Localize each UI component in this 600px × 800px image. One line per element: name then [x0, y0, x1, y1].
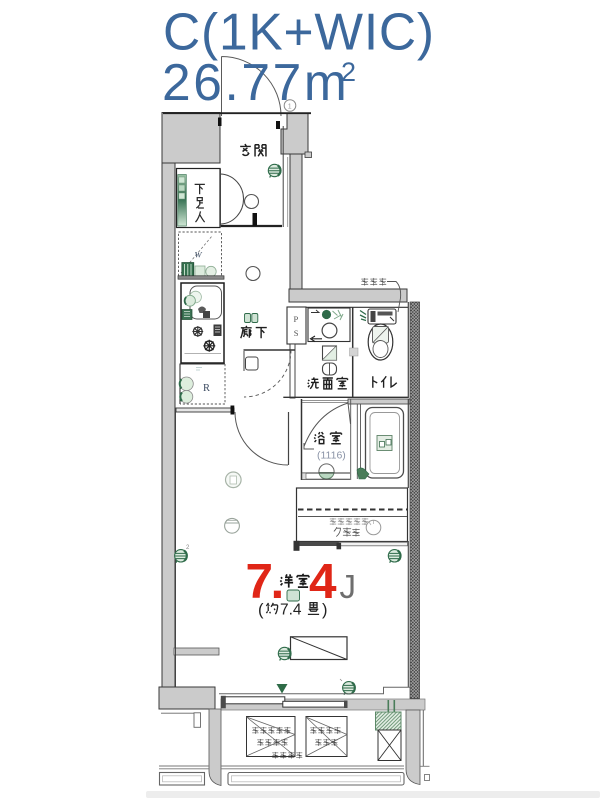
svg-text:7.4: 7.4	[280, 602, 302, 619]
svg-text:J: J	[340, 568, 357, 605]
svg-text:R: R	[203, 383, 210, 394]
svg-text:P: P	[294, 314, 299, 324]
svg-text:W: W	[195, 250, 203, 260]
svg-text:26.77m: 26.77m	[162, 53, 349, 111]
svg-text:1: 1	[288, 104, 292, 111]
svg-text:2: 2	[341, 57, 356, 87]
svg-text:): )	[322, 601, 328, 619]
svg-text:S: S	[294, 328, 299, 338]
svg-text:(: (	[258, 601, 264, 619]
svg-text:C(1K+WIC): C(1K+WIC)	[163, 3, 435, 61]
svg-text:(1116): (1116)	[317, 450, 346, 462]
